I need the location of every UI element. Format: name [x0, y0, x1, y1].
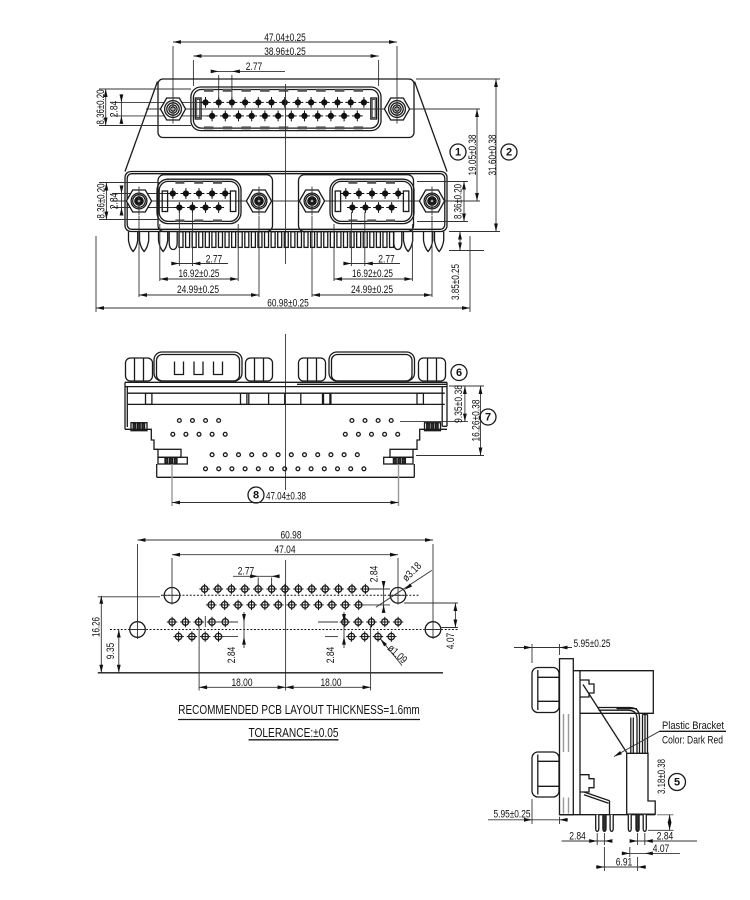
- svg-text:3.18±0.38: 3.18±0.38: [656, 759, 668, 794]
- svg-text:Color: Dark Red: Color: Dark Red: [662, 735, 723, 747]
- svg-text:1: 1: [455, 147, 461, 159]
- svg-text:6.91: 6.91: [616, 856, 633, 868]
- svg-text:8.36±0.20: 8.36±0.20: [95, 90, 107, 125]
- svg-text:38.96±0.25: 38.96±0.25: [264, 46, 306, 58]
- svg-text:4.07: 4.07: [653, 843, 670, 855]
- svg-text:6: 6: [456, 367, 462, 379]
- svg-text:24.99±0.25: 24.99±0.25: [351, 284, 393, 296]
- svg-text:5.95±0.25: 5.95±0.25: [494, 808, 531, 820]
- svg-text:7: 7: [485, 412, 491, 424]
- svg-text:8.36±0.20: 8.36±0.20: [453, 184, 465, 219]
- svg-text:47.04: 47.04: [275, 544, 296, 556]
- svg-text:TOLERANCE:±0.05: TOLERANCE:±0.05: [249, 725, 339, 740]
- svg-text:60.98±0.25: 60.98±0.25: [267, 298, 309, 310]
- svg-text:8: 8: [253, 490, 259, 502]
- svg-text:2.84: 2.84: [369, 566, 381, 583]
- svg-text:16.92±0.25: 16.92±0.25: [352, 268, 393, 280]
- svg-text:2.84: 2.84: [569, 830, 586, 842]
- svg-text:19.05±0.38: 19.05±0.38: [467, 135, 479, 176]
- svg-text:16.26: 16.26: [91, 617, 103, 637]
- svg-text:9.35±0.38: 9.35±0.38: [453, 385, 465, 423]
- svg-text:2.84: 2.84: [325, 647, 337, 664]
- svg-text:18.00: 18.00: [321, 677, 342, 689]
- svg-text:60.98: 60.98: [281, 529, 302, 541]
- svg-text:2.77: 2.77: [246, 61, 263, 73]
- svg-text:3.85±0.25: 3.85±0.25: [450, 264, 462, 300]
- svg-text:2.84: 2.84: [226, 647, 238, 664]
- svg-text:2.77: 2.77: [238, 565, 255, 577]
- svg-text:RECOMMENDED PCB LAYOUT THIC: RECOMMENDED PCB LAYOUT THICKNESS=1.6mm: [178, 702, 420, 717]
- svg-text:31.60±0.38: 31.60±0.38: [487, 135, 499, 176]
- svg-text:2.84: 2.84: [109, 101, 121, 118]
- svg-text:47.04±0.38: 47.04±0.38: [266, 491, 306, 503]
- svg-text:47.04±0.25: 47.04±0.25: [264, 32, 306, 44]
- svg-text:24.99±0.25: 24.99±0.25: [177, 284, 219, 296]
- svg-text:2.84: 2.84: [109, 193, 121, 210]
- svg-text:2.77: 2.77: [378, 254, 395, 266]
- svg-text:8.36±0.20: 8.36±0.20: [96, 184, 108, 219]
- svg-text:9.35: 9.35: [105, 643, 117, 660]
- svg-text:Plastic Bracket: Plastic Bracket: [662, 720, 724, 732]
- svg-text:5: 5: [674, 777, 680, 789]
- svg-text:2.77: 2.77: [206, 254, 223, 266]
- svg-text:2.84: 2.84: [657, 830, 674, 842]
- svg-text:16.92±0.25: 16.92±0.25: [179, 268, 220, 280]
- svg-text:2: 2: [506, 147, 512, 159]
- svg-text:18.00: 18.00: [232, 677, 253, 689]
- svg-text:5.95±0.25: 5.95±0.25: [574, 638, 611, 650]
- svg-text:4.07: 4.07: [445, 633, 457, 650]
